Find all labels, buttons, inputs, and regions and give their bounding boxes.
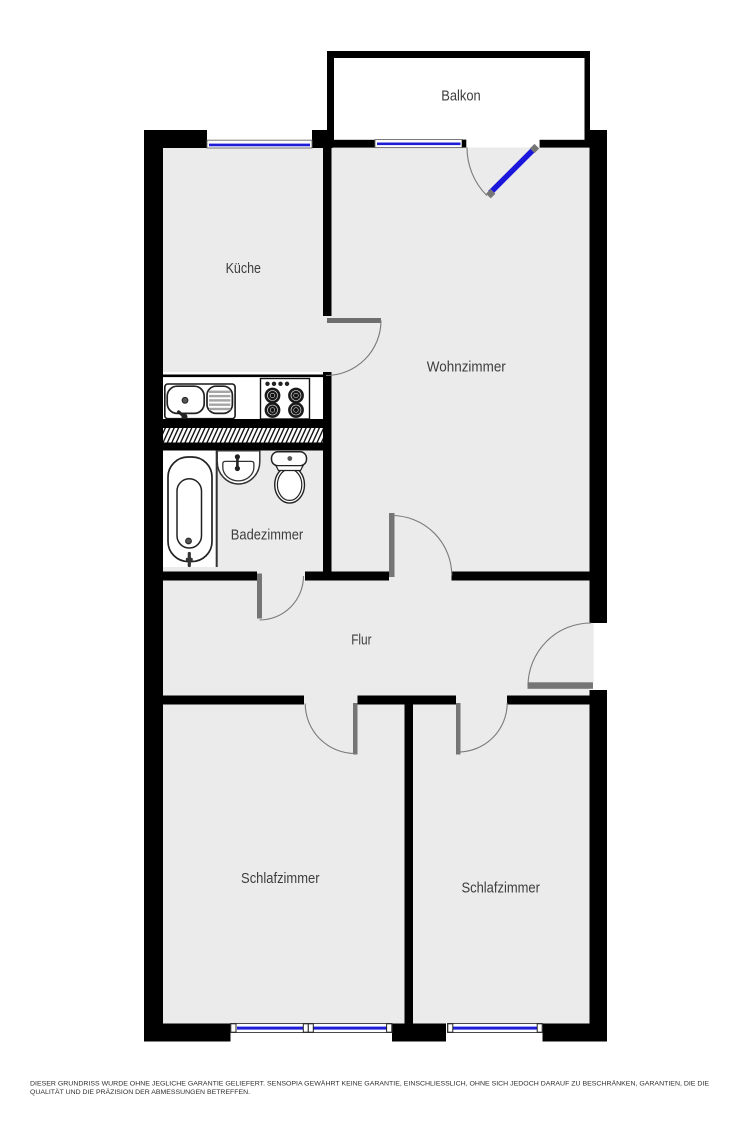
svg-text:Küche: Küche xyxy=(226,261,261,277)
svg-text:Balkon: Balkon xyxy=(441,89,481,105)
svg-text:Wohnzimmer: Wohnzimmer xyxy=(427,359,506,375)
svg-text:Flur: Flur xyxy=(351,632,371,648)
svg-text:Schlafzimmer: Schlafzimmer xyxy=(461,881,540,897)
svg-text:Schlafzimmer: Schlafzimmer xyxy=(241,871,320,887)
svg-text:Badezimmer: Badezimmer xyxy=(231,527,303,543)
svg-text:QUALITÄT UND DIE PRÄZISION DER: QUALITÄT UND DIE PRÄZISION DER ABMESSUNG… xyxy=(30,1088,250,1096)
svg-text:DIESER GRUNDRISS WURDE OHNE JE: DIESER GRUNDRISS WURDE OHNE JEGLICHE GAR… xyxy=(30,1080,710,1088)
